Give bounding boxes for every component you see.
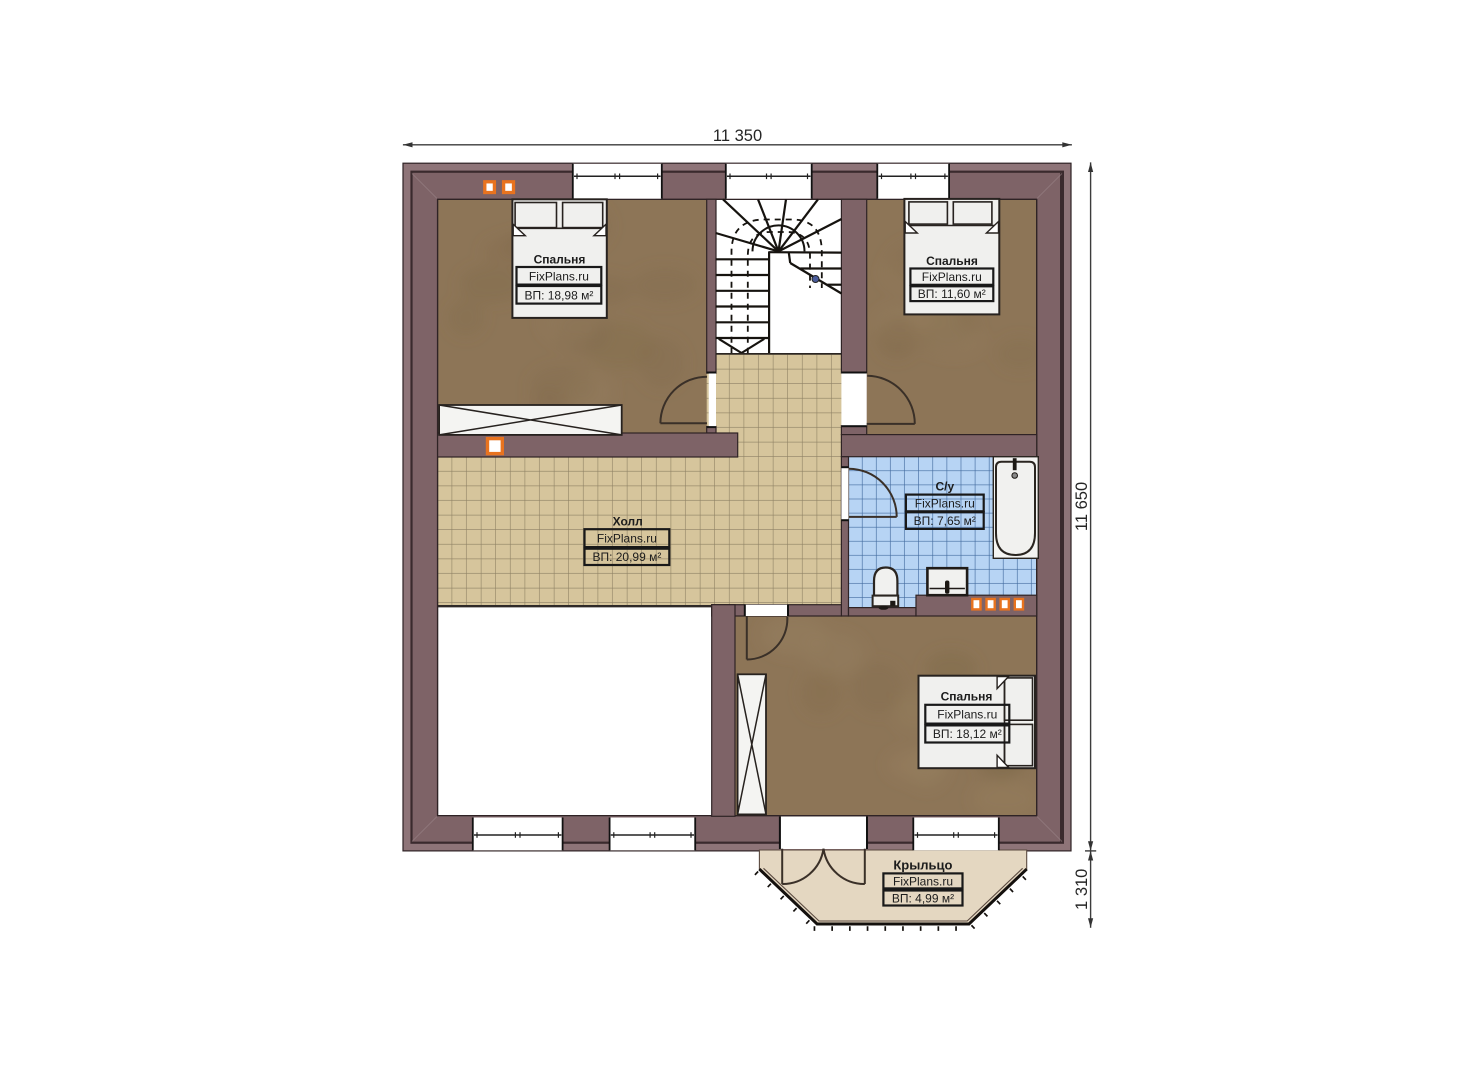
svg-text:ВП: 18,98 м²: ВП: 18,98 м² [524, 288, 593, 302]
svg-text:11 650: 11 650 [1073, 482, 1091, 531]
svg-text:Холл: Холл [613, 514, 643, 528]
svg-text:FixPlans.ru: FixPlans.ru [529, 269, 589, 283]
svg-text:Спальня: Спальня [941, 689, 993, 703]
svg-text:FixPlans.ru: FixPlans.ru [937, 707, 997, 721]
svg-text:ВП: 11,60 м²: ВП: 11,60 м² [918, 287, 986, 301]
svg-text:С/у: С/у [935, 480, 954, 494]
svg-text:Спальня: Спальня [534, 252, 586, 266]
svg-text:11 350: 11 350 [713, 127, 762, 145]
svg-text:Спальня: Спальня [926, 254, 978, 268]
svg-text:ВП: 4,99 м²: ВП: 4,99 м² [892, 892, 954, 906]
svg-text:1 310: 1 310 [1073, 869, 1091, 910]
svg-text:FixPlans.ru: FixPlans.ru [922, 270, 982, 284]
svg-text:FixPlans.ru: FixPlans.ru [915, 496, 975, 510]
svg-text:FixPlans.ru: FixPlans.ru [893, 875, 953, 889]
svg-text:FixPlans.ru: FixPlans.ru [597, 531, 657, 545]
svg-text:ВП: 18,12 м²: ВП: 18,12 м² [933, 727, 1002, 741]
svg-text:Крыльцо: Крыльцо [893, 858, 952, 873]
svg-text:ВП: 20,99 м²: ВП: 20,99 м² [592, 550, 661, 564]
svg-text:ВП: 7,65 м²: ВП: 7,65 м² [914, 514, 976, 528]
